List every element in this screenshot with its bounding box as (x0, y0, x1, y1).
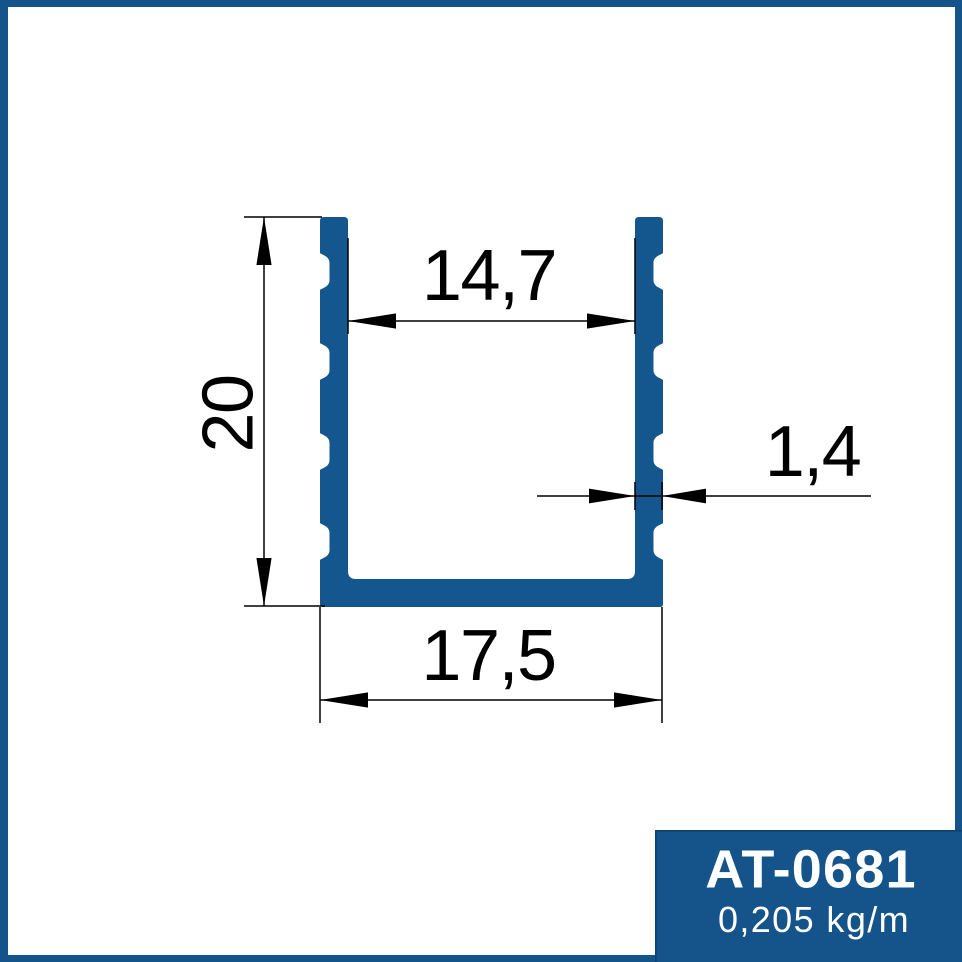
svg-text:17,5: 17,5 (421, 616, 555, 696)
svg-text:1,4: 1,4 (765, 412, 861, 492)
svg-text:0,205 kg/m: 0,205 kg/m (718, 899, 910, 940)
svg-text:20: 20 (189, 375, 269, 452)
svg-text:14,7: 14,7 (422, 236, 556, 316)
svg-text:AT-0681: AT-0681 (705, 840, 917, 900)
